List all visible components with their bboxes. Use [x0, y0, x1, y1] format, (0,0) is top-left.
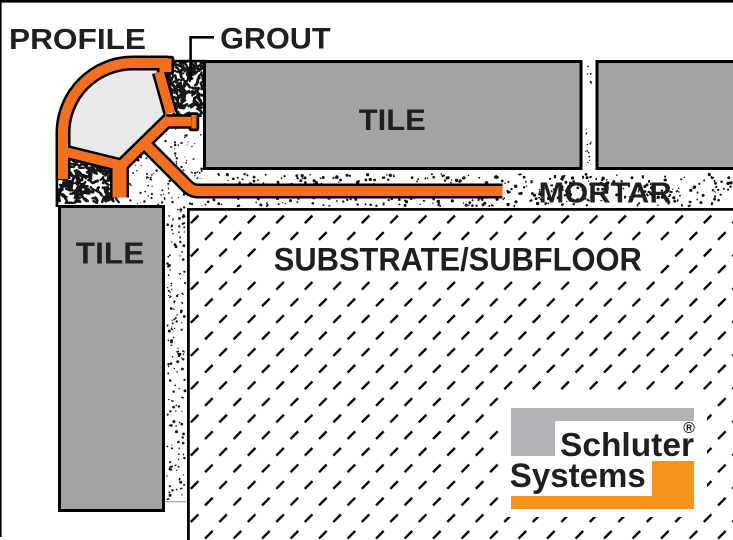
svg-text:MORTAR: MORTAR — [539, 177, 672, 209]
svg-text:PROFILE: PROFILE — [9, 24, 146, 56]
svg-text:Systems: Systems — [510, 457, 646, 495]
svg-text:GROUT: GROUT — [220, 22, 331, 55]
svg-text:®: ® — [683, 420, 695, 437]
svg-text:TILE: TILE — [76, 236, 145, 271]
svg-text:TILE: TILE — [359, 104, 426, 137]
svg-text:SUBSTRATE/SUBFLOOR: SUBSTRATE/SUBFLOOR — [274, 242, 642, 278]
